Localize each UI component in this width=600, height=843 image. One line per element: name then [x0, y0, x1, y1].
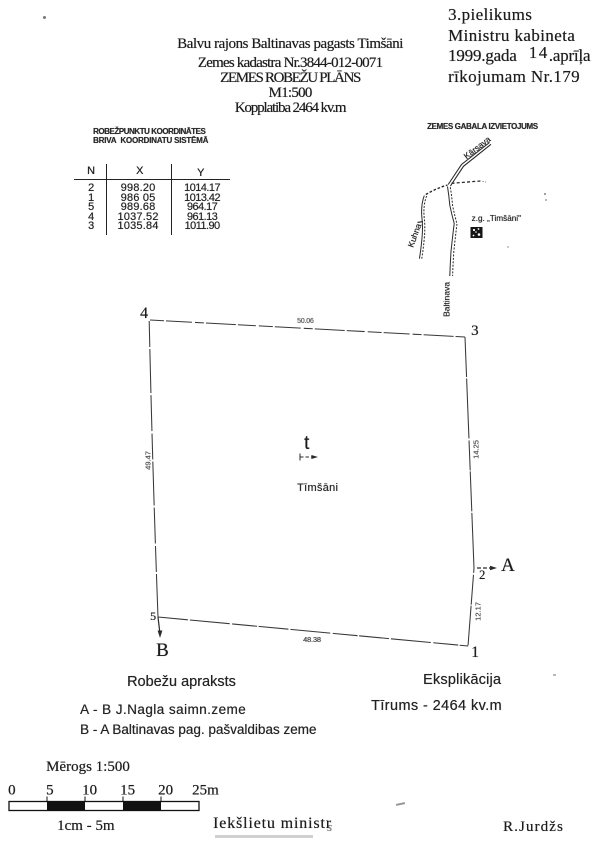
svg-text:10: 10	[82, 783, 97, 799]
svg-text:25m: 25m	[192, 783, 219, 799]
svg-text:15: 15	[120, 783, 135, 799]
svg-text:0: 0	[8, 783, 16, 799]
svg-text:20: 20	[158, 783, 173, 799]
svg-text:z.g. „Timšāni": z.g. „Timšāni"	[472, 214, 522, 223]
svg-text:5: 5	[46, 783, 54, 799]
svg-text:Kuhna: Kuhna	[405, 222, 423, 249]
